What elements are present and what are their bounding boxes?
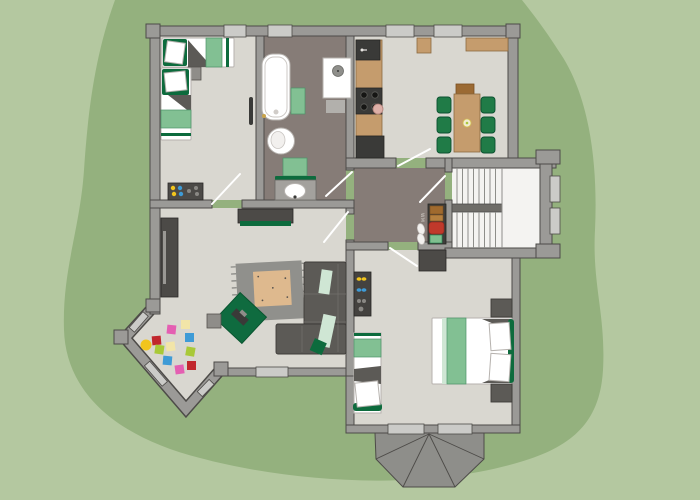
dresser bbox=[419, 250, 446, 271]
floorplan-illustration: WM bbox=[0, 0, 700, 500]
toy-dot bbox=[179, 192, 183, 196]
burner bbox=[361, 104, 367, 110]
sink-faucet bbox=[293, 195, 296, 198]
wall-bath-kitchen bbox=[346, 36, 354, 170]
burner bbox=[361, 92, 367, 98]
single-bed-blanket bbox=[354, 339, 381, 357]
wall-hall-stairs-a bbox=[445, 158, 452, 172]
sideboard bbox=[238, 209, 293, 223]
window-kids-top bbox=[224, 25, 246, 37]
nightstand bbox=[491, 384, 512, 402]
washing-machine-label: WM bbox=[419, 213, 425, 222]
bathtub-drain bbox=[274, 110, 279, 115]
toy-dot bbox=[172, 192, 176, 196]
bathtub-faucet bbox=[262, 114, 266, 118]
kids-bed-h-pillow bbox=[165, 41, 186, 64]
dining-chair bbox=[481, 137, 495, 153]
wall-kitchen-bottom-a bbox=[346, 158, 396, 168]
red-bag bbox=[429, 222, 444, 234]
pillow bbox=[489, 353, 511, 381]
toy-dot bbox=[178, 186, 182, 190]
toy-ball bbox=[141, 340, 152, 351]
green-box bbox=[430, 235, 442, 243]
wall-left bbox=[150, 26, 160, 314]
dining-chair bbox=[481, 97, 495, 113]
sideboard-front bbox=[240, 221, 291, 226]
kids-bed-v-blanket bbox=[161, 110, 191, 128]
window-stairs-1 bbox=[550, 176, 560, 202]
wall-kids-bottom-a bbox=[150, 200, 212, 208]
dining-chair bbox=[437, 117, 451, 133]
window-stairs-2 bbox=[550, 208, 560, 234]
storage-box bbox=[430, 215, 443, 221]
bath-mat bbox=[291, 88, 305, 114]
wall-kids-bottom-b bbox=[242, 200, 354, 208]
shower-head-dot bbox=[337, 70, 339, 72]
window-bedroom-bottom-2 bbox=[438, 424, 472, 434]
dining-chair bbox=[437, 97, 451, 113]
kids-bed-v-pillow bbox=[164, 71, 187, 92]
window-bath-top bbox=[268, 25, 292, 37]
double-bed-blanket bbox=[447, 318, 466, 384]
wall-right-upper bbox=[508, 26, 518, 168]
kids-bed-v-stripe bbox=[161, 133, 191, 136]
dining-chair bbox=[437, 137, 451, 153]
burner bbox=[372, 92, 378, 98]
pilaster-top-left bbox=[146, 24, 160, 38]
side-table bbox=[207, 314, 221, 328]
table-plate-center bbox=[466, 122, 469, 125]
kitchen-cabinet bbox=[356, 136, 384, 158]
pilaster-bay-top bbox=[146, 299, 160, 312]
wall-hall-bottom-a bbox=[346, 242, 388, 250]
window-living-bottom bbox=[256, 367, 288, 377]
dining-bench bbox=[456, 84, 474, 94]
single-bed-stripe bbox=[354, 333, 381, 336]
towel bbox=[283, 158, 307, 176]
nightstand bbox=[491, 299, 512, 317]
wall-top bbox=[150, 26, 518, 36]
pilaster-bay-right bbox=[214, 362, 228, 376]
storage-box bbox=[430, 206, 443, 214]
wall-bedroom-left bbox=[346, 376, 354, 433]
shower bbox=[323, 58, 351, 98]
shower-mat bbox=[326, 100, 345, 113]
toilet-seat bbox=[271, 132, 285, 149]
wall-living-hall-b bbox=[346, 240, 354, 376]
window-bedroom-bottom-1 bbox=[388, 424, 424, 434]
kids-bed-h-stripe bbox=[226, 38, 229, 67]
toy-dot bbox=[194, 186, 198, 190]
wall-shelf-long bbox=[466, 38, 508, 51]
double-bed-stripe-pale bbox=[442, 318, 447, 384]
window-kitchen-top-1 bbox=[386, 25, 414, 37]
dining-chair bbox=[481, 117, 495, 133]
media-shelf-line bbox=[163, 231, 166, 284]
kids-toy-shelf bbox=[168, 183, 203, 200]
pilaster-top-right bbox=[506, 24, 520, 38]
pilaster-stairs-bottom bbox=[536, 244, 560, 258]
pillow bbox=[489, 322, 511, 350]
pilaster-stairs-top bbox=[536, 150, 560, 164]
toy-dot bbox=[171, 186, 175, 190]
wall-bedroom-bottom bbox=[346, 425, 520, 433]
sliding-door-handle bbox=[249, 97, 253, 125]
window-kitchen-top-2 bbox=[434, 25, 462, 37]
toy-dot bbox=[187, 189, 191, 193]
kids-bed-h-blanket bbox=[206, 38, 222, 67]
kitchen-sink-unit bbox=[356, 40, 380, 60]
stair-railing bbox=[452, 204, 502, 212]
wall-shelf-small bbox=[417, 38, 431, 53]
single-bed-pillow bbox=[355, 381, 380, 407]
bedroom-shelf bbox=[354, 272, 371, 316]
cooking-pot bbox=[373, 104, 383, 114]
pilaster-bay-left bbox=[114, 330, 128, 344]
toy-dot bbox=[195, 192, 199, 196]
